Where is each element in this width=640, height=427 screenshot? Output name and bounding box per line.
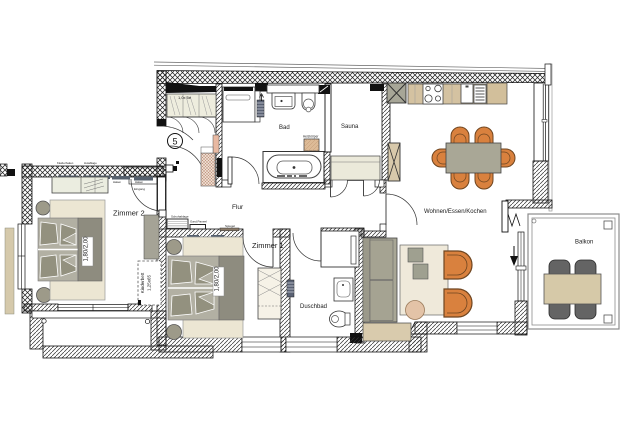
svg-text:Wohnen/Essen/Kochen: Wohnen/Essen/Kochen [424,209,487,215]
svg-text:5: 5 [172,137,177,147]
svg-text:Duschbad: Duschbad [300,304,327,310]
svg-text:Kinderbett: Kinderbett [140,272,145,293]
svg-text:Kleiderhaken: Kleiderhaken [57,161,74,165]
svg-text:1,80/2,00: 1,80/2,00 [84,236,90,262]
svg-text:Zimmer 2: Zimmer 2 [113,209,145,218]
svg-text:Spiegel: Spiegel [225,224,235,228]
svg-text:1,0x 5e: 1,0x 5e [178,95,192,100]
svg-text:1,25x65: 1,25x65 [147,274,152,291]
svg-text:Eingang: Eingang [134,187,145,191]
svg-text:Sauna: Sauna [341,124,359,130]
svg-text:Zimmer 1: Zimmer 1 [252,241,284,250]
svg-text:Bad: Bad [279,125,290,131]
svg-text:Flur: Flur [232,204,244,211]
svg-text:1,80/2,00: 1,80/2,00 [215,266,221,292]
svg-text:Balkon: Balkon [575,240,593,246]
svg-text:Hutablage: Hutablage [84,161,97,165]
svg-text:Gard.Paneel: Gard.Paneel [190,220,207,224]
svg-text:Heizkörper: Heizkörper [303,135,319,139]
svg-text:Schuhablage: Schuhablage [171,215,189,219]
svg-text:Haken: Haken [135,180,144,184]
svg-text:Haken: Haken [113,180,122,184]
